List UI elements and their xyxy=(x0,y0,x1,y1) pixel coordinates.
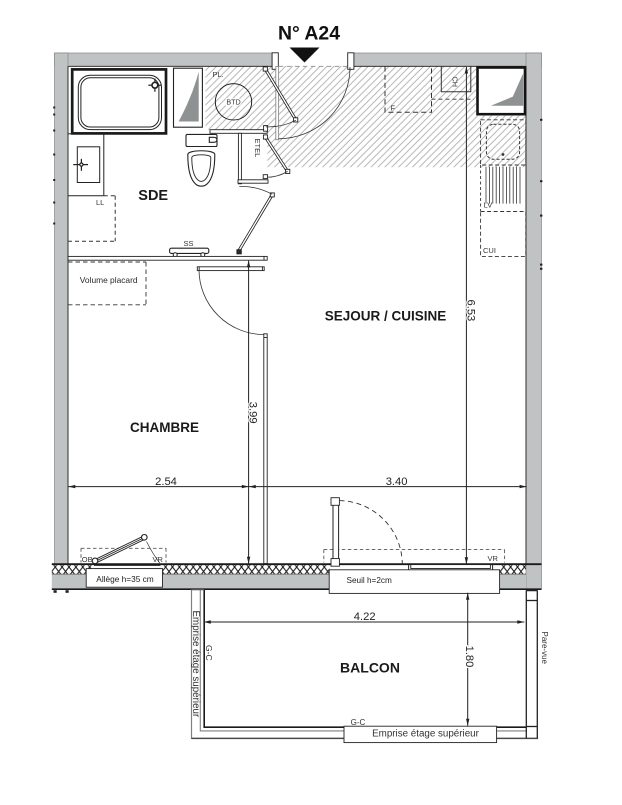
svg-text:VR: VR xyxy=(488,554,499,563)
svg-text:PL.: PL. xyxy=(213,70,224,79)
svg-text:1.80: 1.80 xyxy=(463,646,475,668)
svg-text:2.54: 2.54 xyxy=(155,476,177,488)
svg-text:OB: OB xyxy=(82,555,93,564)
svg-text:VR: VR xyxy=(153,555,164,564)
svg-text:ETEL: ETEL xyxy=(253,139,262,158)
svg-text:SS: SS xyxy=(184,239,194,248)
svg-text:G-C: G-C xyxy=(204,645,214,661)
svg-text:BALCON: BALCON xyxy=(340,659,400,675)
svg-text:CHAMBRE: CHAMBRE xyxy=(130,420,199,435)
svg-text:Emprise étage supérieur: Emprise étage supérieur xyxy=(372,729,479,740)
svg-text:G-C: G-C xyxy=(351,718,366,727)
svg-text:Volume placard: Volume placard xyxy=(80,275,138,285)
svg-text:LL: LL xyxy=(96,198,104,207)
svg-text:CH: CH xyxy=(451,77,460,87)
svg-text:4.22: 4.22 xyxy=(354,611,376,623)
svg-text:Seuil h=2cm: Seuil h=2cm xyxy=(347,576,392,585)
svg-text:Pare-vue: Pare-vue xyxy=(540,632,549,665)
svg-text:LV: LV xyxy=(484,201,493,210)
svg-text:F: F xyxy=(391,104,396,113)
svg-text:Allège h=35 cm: Allège h=35 cm xyxy=(96,574,154,584)
svg-text:3.40: 3.40 xyxy=(386,476,408,488)
svg-text:CUI: CUI xyxy=(483,246,496,255)
svg-text:Emprise étage supérieur: Emprise étage supérieur xyxy=(190,611,201,718)
svg-text:SEJOUR / CUISINE: SEJOUR / CUISINE xyxy=(325,309,447,324)
svg-text:SDE: SDE xyxy=(138,188,168,204)
svg-text:3.99: 3.99 xyxy=(247,402,259,424)
svg-text:BTD: BTD xyxy=(226,98,240,107)
svg-text:6.53: 6.53 xyxy=(464,300,476,322)
svg-text:N° A24: N° A24 xyxy=(278,23,340,45)
